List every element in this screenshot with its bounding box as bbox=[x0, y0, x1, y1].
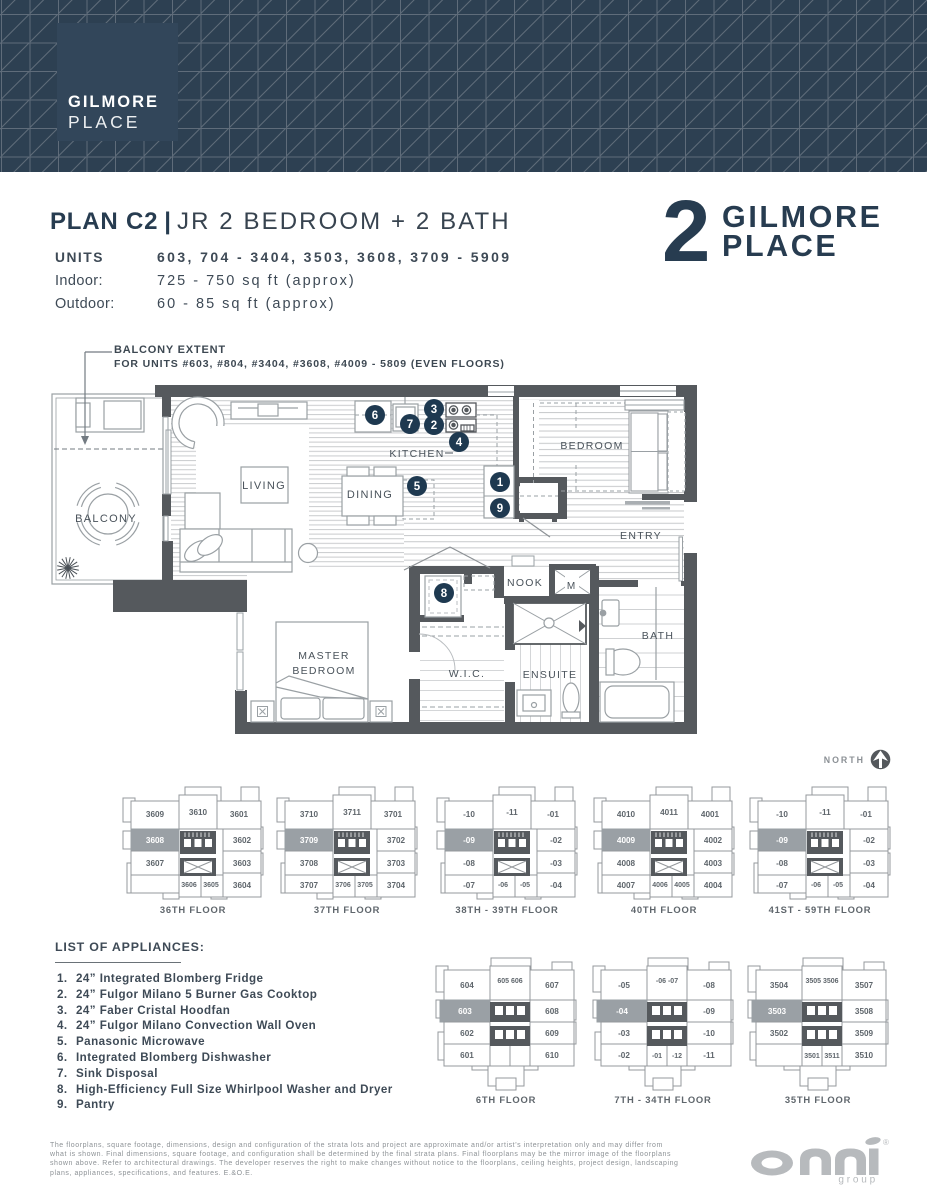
svg-text:3503: 3503 bbox=[768, 1007, 787, 1016]
svg-text:MASTER: MASTER bbox=[298, 650, 350, 662]
svg-text:-04: -04 bbox=[550, 881, 562, 890]
svg-text:3610: 3610 bbox=[189, 808, 208, 817]
svg-text:3510: 3510 bbox=[855, 1051, 874, 1060]
svg-text:-05: -05 bbox=[520, 882, 530, 889]
svg-text:group: group bbox=[838, 1175, 878, 1186]
svg-text:-04: -04 bbox=[863, 881, 875, 890]
svg-text:ENTRY: ENTRY bbox=[620, 530, 662, 542]
svg-text:-05: -05 bbox=[618, 981, 630, 990]
svg-text:3709: 3709 bbox=[300, 836, 319, 845]
svg-text:-04: -04 bbox=[616, 1007, 628, 1016]
svg-text:41ST - 59TH FLOOR: 41ST - 59TH FLOOR bbox=[769, 904, 872, 915]
svg-text:3705: 3705 bbox=[357, 882, 373, 889]
svg-text:4007: 4007 bbox=[617, 881, 636, 890]
svg-text:-11: -11 bbox=[819, 808, 831, 817]
svg-text:3502: 3502 bbox=[770, 1029, 789, 1038]
svg-text:BATH: BATH bbox=[642, 630, 674, 642]
svg-text:3710: 3710 bbox=[300, 810, 319, 819]
svg-text:NOOK: NOOK bbox=[507, 577, 543, 589]
svg-text:-03: -03 bbox=[863, 859, 875, 868]
svg-text:3505 3506: 3505 3506 bbox=[805, 978, 838, 985]
svg-text:LIVING: LIVING bbox=[242, 480, 286, 492]
svg-text:BALCONY: BALCONY bbox=[75, 513, 137, 525]
svg-text:3704: 3704 bbox=[387, 881, 406, 890]
svg-text:-07: -07 bbox=[776, 881, 788, 890]
svg-text:2: 2 bbox=[431, 420, 437, 432]
svg-text:4: 4 bbox=[456, 437, 463, 449]
svg-text:BEDROOM: BEDROOM bbox=[560, 440, 623, 452]
svg-text:-07: -07 bbox=[463, 881, 475, 890]
svg-text:3508: 3508 bbox=[855, 1007, 874, 1016]
svg-text:-09: -09 bbox=[703, 1007, 715, 1016]
svg-text:8: 8 bbox=[441, 588, 448, 600]
svg-text:3601: 3601 bbox=[230, 810, 249, 819]
svg-text:3706: 3706 bbox=[335, 882, 351, 889]
svg-text:4005: 4005 bbox=[674, 882, 690, 889]
svg-text:FOR UNITS #603, #804, #3404, #: FOR UNITS #603, #804, #3404, #3608, #400… bbox=[114, 358, 505, 370]
svg-text:BALCONY EXTENT: BALCONY EXTENT bbox=[114, 344, 226, 356]
svg-text:3501: 3501 bbox=[804, 1053, 820, 1060]
svg-text:-08: -08 bbox=[463, 859, 475, 868]
svg-text:4010: 4010 bbox=[617, 810, 636, 819]
svg-text:4002: 4002 bbox=[704, 836, 723, 845]
svg-text:W.I.C.: W.I.C. bbox=[449, 668, 485, 680]
svg-text:605 606: 605 606 bbox=[497, 978, 522, 985]
svg-text:40TH FLOOR: 40TH FLOOR bbox=[631, 904, 697, 915]
svg-text:DINING: DINING bbox=[347, 489, 393, 501]
svg-text:610: 610 bbox=[545, 1051, 559, 1060]
svg-text:-11: -11 bbox=[703, 1051, 715, 1060]
svg-text:-10: -10 bbox=[703, 1029, 715, 1038]
svg-text:3606: 3606 bbox=[181, 882, 197, 889]
svg-text:-03: -03 bbox=[550, 859, 562, 868]
svg-text:-10: -10 bbox=[776, 810, 788, 819]
svg-text:3504: 3504 bbox=[770, 981, 789, 990]
svg-text:4008: 4008 bbox=[617, 859, 636, 868]
svg-text:3703: 3703 bbox=[387, 859, 406, 868]
svg-text:BEDROOM: BEDROOM bbox=[292, 665, 355, 677]
svg-text:3609: 3609 bbox=[146, 810, 165, 819]
svg-text:3507: 3507 bbox=[855, 981, 874, 990]
svg-text:3602: 3602 bbox=[233, 836, 252, 845]
svg-text:M: M bbox=[567, 581, 575, 592]
svg-text:3603: 3603 bbox=[233, 859, 252, 868]
svg-text:3608: 3608 bbox=[146, 836, 165, 845]
svg-text:-02: -02 bbox=[618, 1051, 630, 1060]
svg-text:35TH FLOOR: 35TH FLOOR bbox=[785, 1094, 851, 1105]
svg-text:1: 1 bbox=[497, 477, 504, 489]
svg-text:3605: 3605 bbox=[203, 882, 219, 889]
svg-text:5: 5 bbox=[414, 481, 421, 493]
svg-text:-05: -05 bbox=[833, 882, 843, 889]
svg-text:4003: 4003 bbox=[704, 859, 723, 868]
svg-text:-03: -03 bbox=[618, 1029, 630, 1038]
svg-text:7: 7 bbox=[407, 419, 413, 431]
svg-text:36TH FLOOR: 36TH FLOOR bbox=[160, 904, 226, 915]
svg-text:38TH - 39TH FLOOR: 38TH - 39TH FLOOR bbox=[455, 904, 558, 915]
svg-text:NORTH: NORTH bbox=[824, 755, 865, 765]
svg-text:7TH - 34TH FLOOR: 7TH - 34TH FLOOR bbox=[614, 1094, 711, 1105]
svg-text:-01: -01 bbox=[860, 810, 872, 819]
svg-text:3604: 3604 bbox=[233, 881, 252, 890]
svg-text:-06: -06 bbox=[811, 882, 821, 889]
svg-text:3511: 3511 bbox=[824, 1053, 839, 1060]
svg-text:6: 6 bbox=[372, 410, 378, 422]
svg-text:4006: 4006 bbox=[652, 882, 668, 889]
svg-text:3: 3 bbox=[431, 404, 437, 416]
svg-text:KITCHEN: KITCHEN bbox=[389, 448, 444, 460]
svg-text:9: 9 bbox=[497, 503, 503, 515]
svg-text:3702: 3702 bbox=[387, 836, 406, 845]
svg-text:3711: 3711 bbox=[343, 808, 361, 817]
svg-text:-01: -01 bbox=[547, 810, 559, 819]
svg-text:4001: 4001 bbox=[701, 810, 720, 819]
svg-text:4004: 4004 bbox=[704, 881, 723, 890]
svg-text:3707: 3707 bbox=[300, 881, 319, 890]
svg-text:-09: -09 bbox=[776, 836, 788, 845]
svg-text:-06 -07: -06 -07 bbox=[656, 978, 678, 985]
svg-text:37TH FLOOR: 37TH FLOOR bbox=[314, 904, 380, 915]
svg-text:-10: -10 bbox=[463, 810, 475, 819]
svg-text:3607: 3607 bbox=[146, 859, 165, 868]
svg-text:-08: -08 bbox=[703, 981, 715, 990]
svg-text:-12: -12 bbox=[672, 1053, 682, 1060]
svg-text:-11: -11 bbox=[506, 808, 518, 817]
svg-text:®: ® bbox=[883, 1138, 889, 1147]
svg-text:609: 609 bbox=[545, 1029, 559, 1038]
svg-text:3509: 3509 bbox=[855, 1029, 874, 1038]
svg-text:607: 607 bbox=[545, 981, 559, 990]
svg-text:4009: 4009 bbox=[617, 836, 636, 845]
svg-text:3701: 3701 bbox=[384, 810, 403, 819]
svg-text:-01: -01 bbox=[652, 1053, 662, 1060]
svg-text:ENSUITE: ENSUITE bbox=[523, 669, 578, 681]
svg-text:-08: -08 bbox=[776, 859, 788, 868]
svg-text:608: 608 bbox=[545, 1007, 559, 1016]
svg-text:3708: 3708 bbox=[300, 859, 319, 868]
svg-text:-02: -02 bbox=[863, 836, 875, 845]
svg-text:-06: -06 bbox=[498, 882, 508, 889]
svg-text:4011: 4011 bbox=[660, 808, 678, 817]
svg-text:-02: -02 bbox=[550, 836, 562, 845]
svg-text:-09: -09 bbox=[463, 836, 475, 845]
